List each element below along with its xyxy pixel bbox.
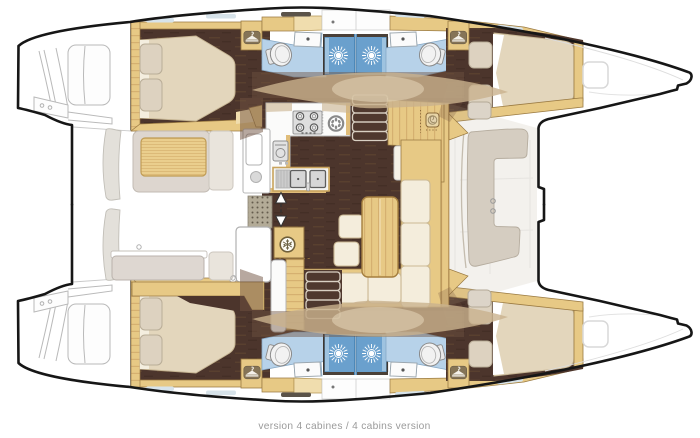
svg-text:version 4 cabines / 4 cabins v: version 4 cabines / 4 cabins version xyxy=(258,421,430,432)
